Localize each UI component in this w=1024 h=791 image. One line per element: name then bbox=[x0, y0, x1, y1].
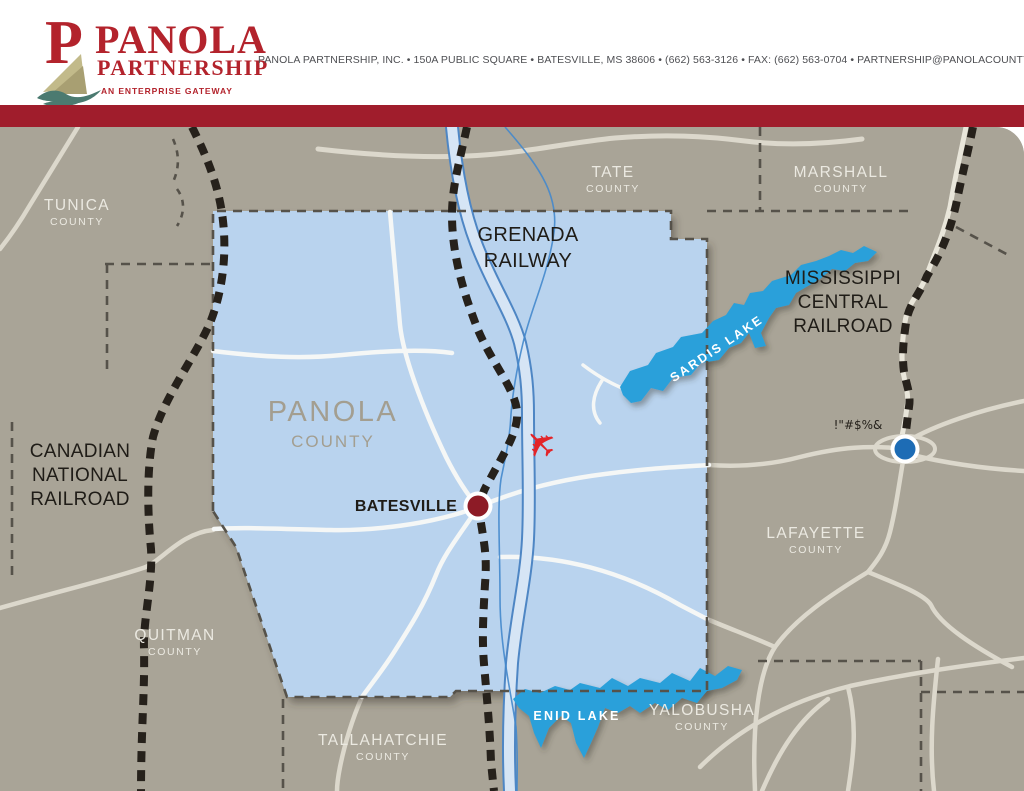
batesville-marker bbox=[464, 492, 493, 521]
railroad-name-line: RAILROAD bbox=[30, 488, 131, 512]
label-panola-county: PANOLA COUNTY bbox=[268, 395, 399, 452]
county-sub: COUNTY bbox=[44, 216, 110, 229]
label-tate-county: TATE COUNTY bbox=[586, 164, 640, 195]
label-batesville: BATESVILLE bbox=[355, 497, 457, 516]
label-tunica-county: TUNICA COUNTY bbox=[44, 197, 110, 228]
panola-partnership-logo: P PANOLA PARTNERSHIP AN ENTERPRISE GATEW… bbox=[35, 6, 270, 104]
label-oxford-glitch-text: !"#$%& bbox=[834, 418, 883, 432]
county-name: TUNICA bbox=[44, 197, 110, 216]
label-mississippi-central-railroad: MISSISSIPPI CENTRAL RAILROAD bbox=[785, 267, 901, 339]
county-sub: COUNTY bbox=[268, 432, 399, 452]
oxford-marker bbox=[891, 435, 920, 464]
label-marshall-county: MARSHALL COUNTY bbox=[794, 164, 889, 195]
label-enid-lake: ENID LAKE bbox=[533, 709, 620, 724]
label-yalobusha-county: YALOBUSHA COUNTY bbox=[649, 702, 755, 733]
logo-tagline: AN ENTERPRISE GATEWAY bbox=[101, 86, 233, 96]
county-name: YALOBUSHA bbox=[649, 702, 755, 721]
railroad-name-line: CANADIAN bbox=[30, 440, 131, 464]
contact-line: PANOLA PARTNERSHIP, INC. • 150A PUBLIC S… bbox=[258, 54, 1016, 66]
logo-line2: PARTNERSHIP bbox=[97, 57, 269, 79]
label-tallahatchie-county: TALLAHATCHIE COUNTY bbox=[318, 732, 448, 763]
label-quitman-county: QUITMAN COUNTY bbox=[134, 627, 215, 658]
railroad-name-line: CENTRAL bbox=[785, 291, 901, 315]
label-canadian-national-railroad: CANADIAN NATIONAL RAILROAD bbox=[30, 440, 131, 512]
railroad-name-line: MISSISSIPPI bbox=[785, 267, 901, 291]
page: P PANOLA PARTNERSHIP AN ENTERPRISE GATEW… bbox=[0, 0, 1024, 791]
railroad-name-line: GRENADA bbox=[477, 222, 578, 248]
county-name: TALLAHATCHIE bbox=[318, 732, 448, 751]
county-name: MARSHALL bbox=[794, 164, 889, 183]
county-name: QUITMAN bbox=[134, 627, 215, 646]
county-sub: COUNTY bbox=[649, 721, 755, 734]
county-name: TATE bbox=[586, 164, 640, 183]
county-sub: COUNTY bbox=[318, 751, 448, 764]
label-lafayette-county: LAFAYETTE COUNTY bbox=[766, 525, 865, 556]
logo-line1: PANOLA bbox=[95, 20, 267, 60]
railroad-name-line: RAILWAY bbox=[477, 248, 578, 274]
county-sub: COUNTY bbox=[766, 544, 865, 557]
header-divider-bar bbox=[0, 105, 1024, 127]
railroad-name-line: RAILROAD bbox=[785, 315, 901, 339]
header: P PANOLA PARTNERSHIP AN ENTERPRISE GATEW… bbox=[0, 0, 1024, 105]
label-grenada-railway: GRENADA RAILWAY bbox=[477, 222, 578, 274]
county-sub: COUNTY bbox=[134, 646, 215, 659]
railroad-name-line: NATIONAL bbox=[30, 464, 131, 488]
county-sub: COUNTY bbox=[586, 183, 640, 196]
logo-letter-p: P bbox=[45, 12, 83, 74]
county-name: LAFAYETTE bbox=[766, 525, 865, 544]
county-sub: COUNTY bbox=[794, 183, 889, 196]
county-name: PANOLA bbox=[268, 395, 399, 430]
county-map: TUNICA COUNTY TATE COUNTY MARSHALL COUNT… bbox=[0, 127, 1024, 791]
